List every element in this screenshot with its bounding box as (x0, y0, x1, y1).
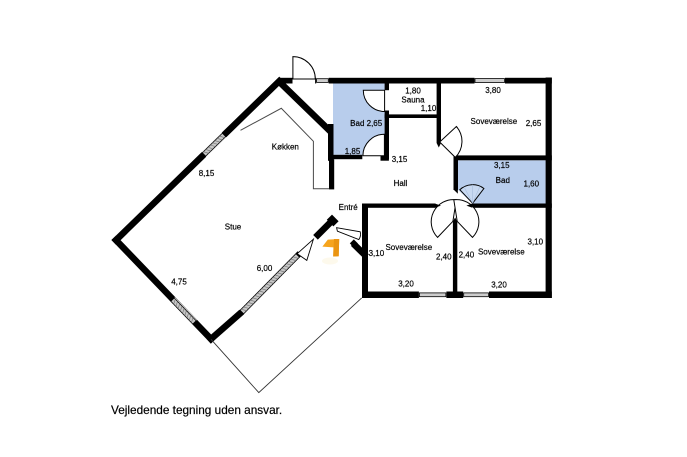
svg-text:1,80: 1,80 (405, 87, 421, 96)
svg-text:8,15: 8,15 (199, 169, 215, 178)
svg-text:Vejledende tegning uden ansvar: Vejledende tegning uden ansvar. (111, 403, 282, 417)
svg-text:2,40: 2,40 (436, 252, 452, 261)
svg-text:Stue: Stue (225, 223, 242, 232)
svg-text:2,65: 2,65 (526, 119, 542, 128)
svg-text:Entré: Entré (339, 203, 359, 212)
svg-text:1,85: 1,85 (345, 147, 361, 156)
svg-text:Bad 2,65: Bad 2,65 (350, 119, 383, 128)
svg-text:Soveværelse: Soveværelse (385, 243, 432, 252)
svg-text:Bad: Bad (496, 176, 510, 185)
svg-text:3,10: 3,10 (369, 249, 385, 258)
svg-text:1,10: 1,10 (421, 104, 437, 113)
svg-text:Køkken: Køkken (272, 143, 299, 152)
svg-text:3,15: 3,15 (392, 155, 408, 164)
svg-text:3,10: 3,10 (528, 238, 544, 247)
svg-text:Soveværelse: Soveværelse (478, 248, 525, 257)
svg-text:Hall: Hall (394, 179, 408, 188)
svg-text:6,00: 6,00 (257, 264, 273, 273)
svg-text:3,80: 3,80 (485, 86, 501, 95)
svg-text:2,40: 2,40 (459, 251, 475, 260)
svg-text:3,20: 3,20 (398, 280, 414, 289)
svg-text:3,15: 3,15 (494, 161, 510, 170)
svg-text:3,20: 3,20 (491, 281, 507, 290)
svg-text:1,60: 1,60 (524, 180, 540, 189)
svg-text:4,75: 4,75 (171, 278, 187, 287)
svg-text:Soveværelse: Soveværelse (471, 117, 518, 126)
